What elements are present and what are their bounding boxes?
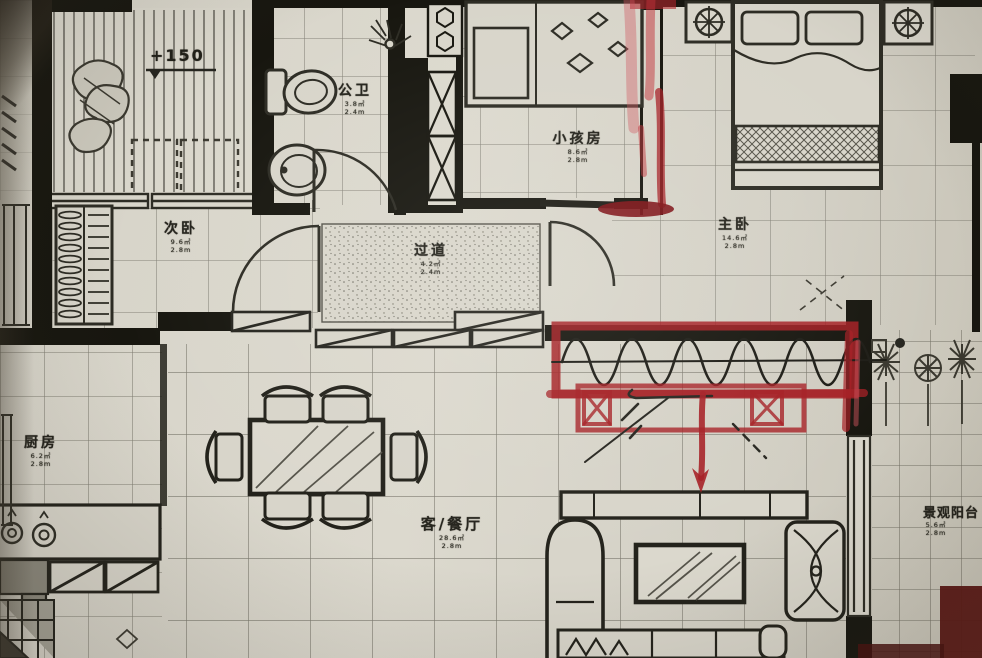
bathroom <box>266 20 411 212</box>
dining-set <box>207 387 426 528</box>
dining-chairs <box>207 387 426 528</box>
room-name: 厨房 <box>4 432 78 452</box>
pouf <box>786 522 844 620</box>
room-label-bathroom: 公卫 3.8㎡ 2.4m <box>310 80 400 116</box>
dashed-floor-boxes <box>132 140 238 196</box>
room-area: 6.2㎡ <box>4 452 78 460</box>
floor-grids <box>0 0 982 658</box>
elevation-label: +150 <box>150 46 205 65</box>
room-label-kids-room: 小孩房 8.6㎡ 2.8m <box>530 128 626 164</box>
room-label-balcony: 景观阳台 5.6㎡ 2.8m <box>896 502 982 537</box>
red-sideboard-sketch <box>578 386 804 462</box>
coffee-table <box>636 545 744 602</box>
master-door-arc <box>550 222 614 286</box>
plants <box>872 338 976 426</box>
children-door-leaf <box>540 203 614 205</box>
bedroom-door-arc <box>233 226 319 312</box>
kitchen-counter <box>0 505 160 559</box>
left-window-hatch <box>2 96 16 170</box>
room-height: 2.8m <box>896 529 982 537</box>
room-name: 景观阳台 <box>896 502 982 521</box>
armchair <box>547 520 603 658</box>
room-label-kitchen: 厨房 6.2㎡ 2.8m <box>4 432 78 468</box>
elevation-triangle <box>149 70 161 79</box>
children-bed <box>466 2 642 106</box>
tv-cabinet <box>561 492 807 518</box>
room-name: 公卫 <box>310 80 400 100</box>
bathroom-door-arc <box>314 150 396 210</box>
deck-sliding-door <box>46 194 262 208</box>
room-label-master-bedroom: 主卧 14.6㎡ 2.8m <box>692 214 778 250</box>
room-area: 5.6㎡ <box>896 521 982 529</box>
photo-vignette <box>0 0 982 658</box>
room-area: 9.6㎡ <box>138 238 224 246</box>
photo-corner-shadow <box>0 0 52 110</box>
shaft-detail <box>428 4 462 200</box>
stove-burners <box>2 510 55 546</box>
room-area: 4.2㎡ <box>388 260 474 268</box>
nightstand-right <box>884 2 932 44</box>
rock-plant-sketch <box>69 60 128 152</box>
living-furniture <box>547 492 844 658</box>
walls <box>0 0 982 658</box>
corner-stairs <box>0 600 54 658</box>
plan-drawing <box>0 0 982 658</box>
room-height: 2.8m <box>530 156 626 164</box>
room-height: 2.4m <box>388 268 474 276</box>
hatched-wall-blocks <box>232 312 543 347</box>
room-name: 客/餐厅 <box>396 513 508 534</box>
balcony <box>848 338 982 658</box>
nightstand-left <box>686 2 732 42</box>
room-label-corridor: 过道 4.2㎡ 2.4m <box>388 240 474 276</box>
room-height: 2.8m <box>4 460 78 468</box>
wardrobe <box>56 206 112 324</box>
room-height: 2.4m <box>310 108 400 116</box>
tile-diamond <box>117 630 137 648</box>
shower-icon <box>369 20 411 49</box>
photo-edge-shadow <box>0 0 34 658</box>
floor-plan-photo: 公卫 3.8㎡ 2.4m 小孩房 8.6㎡ 2.8m 次卧 9.6㎡ 2.8m … <box>0 0 982 658</box>
sliding-door <box>848 436 870 616</box>
red-wall-edge-marks <box>846 334 858 428</box>
room-name: 小孩房 <box>530 128 626 148</box>
room-height: 2.8m <box>692 242 778 250</box>
sink <box>269 145 325 195</box>
master-bed <box>733 2 881 188</box>
dashed-marks <box>800 276 846 312</box>
room-area: 8.6㎡ <box>530 148 626 156</box>
room-name: 次卧 <box>138 218 224 238</box>
deck-area <box>2 8 264 208</box>
room-name: 主卧 <box>692 214 778 234</box>
room-name: 过道 <box>388 240 474 260</box>
left-window <box>2 205 30 325</box>
deck-stripes <box>44 10 254 192</box>
room-height: 2.8m <box>396 542 508 550</box>
room-label-second-bedroom: 次卧 9.6㎡ 2.8m <box>138 218 224 254</box>
dining-table <box>250 420 383 494</box>
room-area: 28.6㎡ <box>396 534 508 542</box>
sofa <box>558 626 786 658</box>
dark-corner <box>940 586 982 658</box>
red-down-arrow <box>692 394 709 493</box>
red-marker-vertical-strokes <box>598 0 676 217</box>
red-highlight-box-with-wavy-line <box>550 326 886 394</box>
room-area: 3.8㎡ <box>310 100 400 108</box>
room-height: 2.8m <box>138 246 224 254</box>
room-area: 14.6㎡ <box>692 234 778 242</box>
room-label-living-dining: 客/餐厅 28.6㎡ 2.8m <box>396 513 508 550</box>
